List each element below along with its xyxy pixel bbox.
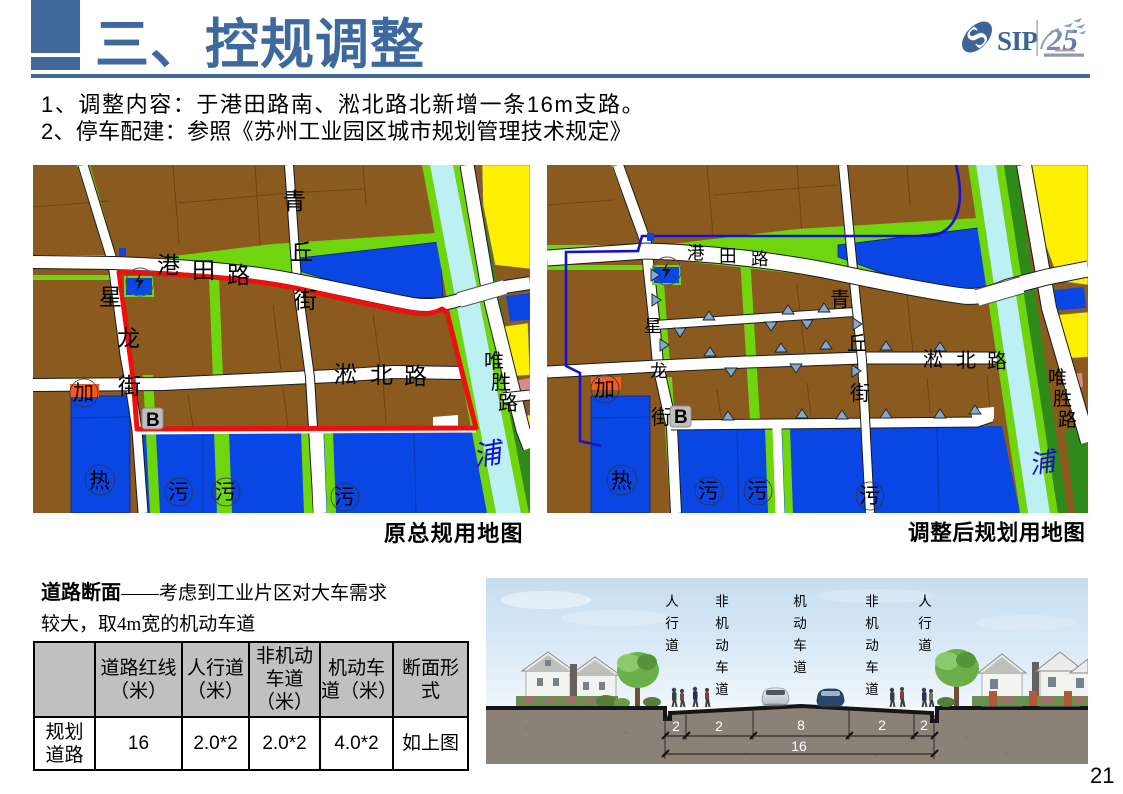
- svg-text:路: 路: [404, 364, 427, 389]
- svg-text:2: 2: [715, 718, 723, 734]
- svg-text:淞: 淞: [334, 362, 357, 387]
- svg-text:路: 路: [227, 263, 250, 288]
- svg-text:人: 人: [918, 594, 932, 609]
- svg-text:道: 道: [793, 660, 807, 675]
- svg-text:道: 道: [665, 638, 679, 653]
- svg-text:机: 机: [715, 616, 729, 631]
- svg-text:2: 2: [672, 718, 680, 734]
- svg-text:丘: 丘: [290, 240, 313, 265]
- svg-text:街: 街: [651, 406, 671, 429]
- svg-text:北: 北: [370, 363, 393, 388]
- svg-text:路: 路: [498, 392, 518, 415]
- svg-text:非: 非: [715, 594, 729, 609]
- svg-text:星: 星: [99, 285, 122, 310]
- svg-text:田: 田: [719, 246, 737, 266]
- svg-text:淞: 淞: [923, 348, 943, 371]
- svg-text:路: 路: [751, 249, 769, 269]
- svg-text:道: 道: [918, 638, 932, 653]
- svg-text:龙: 龙: [117, 326, 140, 351]
- svg-text:B: B: [146, 410, 160, 431]
- svg-text:加: 加: [594, 377, 615, 401]
- svg-text:污: 污: [215, 480, 236, 504]
- svg-text:港: 港: [157, 253, 180, 278]
- svg-text:唯: 唯: [1048, 367, 1067, 389]
- svg-text:行: 行: [665, 616, 679, 631]
- svg-text:2: 2: [878, 717, 886, 733]
- svg-text:车: 车: [793, 637, 807, 653]
- svg-text:龙: 龙: [650, 361, 668, 381]
- svg-text:16: 16: [791, 738, 807, 754]
- svg-text:田: 田: [192, 258, 215, 283]
- svg-text:人: 人: [665, 594, 679, 609]
- svg-text:2: 2: [920, 717, 928, 733]
- svg-text:车: 车: [865, 659, 879, 675]
- svg-text:街: 街: [118, 374, 141, 399]
- svg-text:道: 道: [715, 682, 729, 697]
- svg-text:非: 非: [865, 594, 879, 609]
- svg-text:青: 青: [283, 189, 306, 214]
- svg-text:加: 加: [73, 381, 94, 405]
- svg-text:8: 8: [797, 717, 805, 733]
- svg-text:25: 25: [1046, 22, 1078, 57]
- svg-text:星: 星: [644, 316, 662, 336]
- svg-text:热: 热: [611, 469, 632, 493]
- svg-text:污: 污: [698, 479, 719, 503]
- svg-text:街: 街: [294, 288, 317, 313]
- svg-text:路: 路: [1058, 409, 1077, 431]
- svg-text:机: 机: [793, 594, 807, 609]
- svg-text:动: 动: [865, 638, 879, 653]
- svg-text:热: 热: [89, 469, 110, 493]
- svg-text:污: 污: [334, 485, 355, 509]
- svg-text:北: 北: [956, 349, 976, 372]
- svg-text:B: B: [674, 407, 688, 428]
- svg-text:港: 港: [687, 243, 705, 263]
- svg-text:污: 污: [168, 480, 189, 504]
- svg-text:动: 动: [715, 638, 729, 653]
- svg-text:机: 机: [865, 616, 879, 631]
- svg-text:车: 车: [715, 659, 729, 675]
- svg-text:胜: 胜: [1053, 388, 1072, 410]
- svg-text:路: 路: [987, 350, 1007, 373]
- svg-text:街: 街: [850, 382, 870, 405]
- svg-text:道: 道: [865, 682, 879, 697]
- svg-text:唯: 唯: [484, 350, 504, 373]
- svg-text:动: 动: [793, 616, 807, 631]
- svg-text:污: 污: [747, 479, 768, 503]
- svg-text:青: 青: [830, 288, 850, 311]
- svg-text:SIP: SIP: [997, 26, 1038, 56]
- svg-text:污: 污: [859, 484, 880, 508]
- svg-text:行: 行: [918, 616, 932, 631]
- svg-text:胜: 胜: [491, 371, 511, 394]
- svg-text:丘: 丘: [847, 332, 867, 355]
